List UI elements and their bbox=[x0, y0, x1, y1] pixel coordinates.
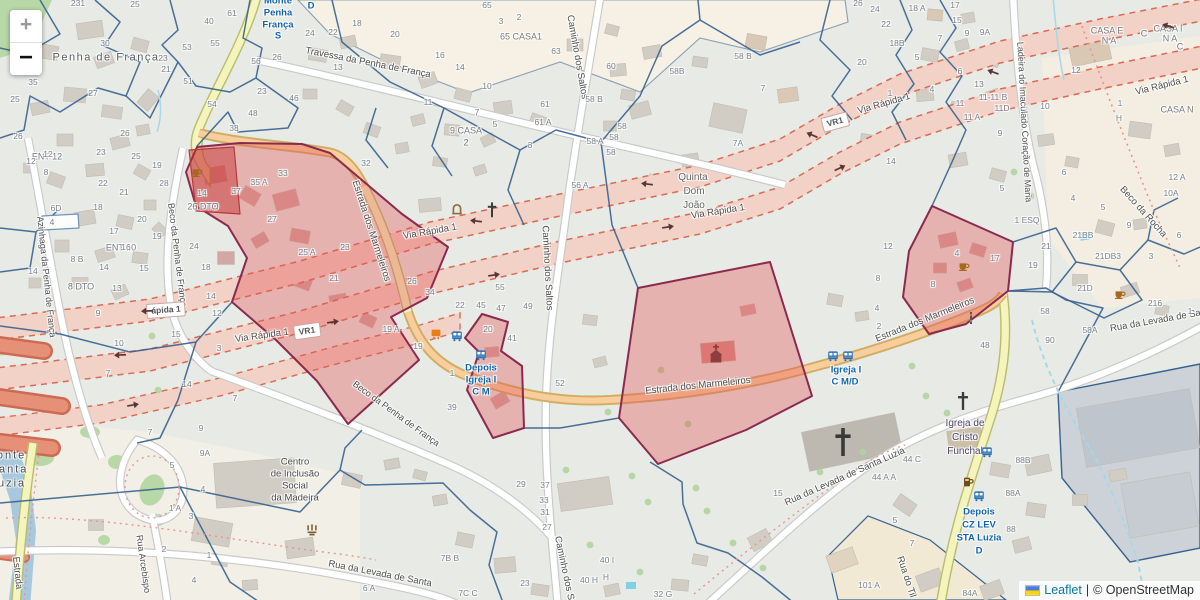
house-number: 88 bbox=[1006, 525, 1015, 534]
road-ref-shield: VR1 bbox=[293, 322, 321, 340]
house-number: 15 bbox=[952, 16, 961, 25]
house-number: 1 bbox=[1118, 99, 1123, 108]
attribution-bar: Leaflet | © OpenStreetMap bbox=[1019, 581, 1200, 600]
house-number: 3 bbox=[528, 141, 533, 150]
house-number: 9A bbox=[980, 28, 990, 37]
house-number: 9 bbox=[965, 29, 970, 38]
street-label: Azinhaga da Penha de França bbox=[35, 216, 57, 338]
bus-stop-label: D bbox=[976, 546, 983, 556]
place-label: 26 DTO bbox=[187, 203, 218, 212]
house-number: 15 bbox=[139, 264, 148, 273]
house-number: 7 bbox=[910, 539, 915, 548]
house-number: 22 bbox=[98, 179, 107, 188]
house-number: 44 C bbox=[903, 455, 921, 464]
house-number: 19 bbox=[1028, 261, 1037, 270]
house-number: 8 B bbox=[71, 255, 84, 264]
house-number: 10 bbox=[482, 82, 491, 91]
house-number: 7 bbox=[148, 428, 153, 437]
house-number: 7 bbox=[106, 369, 111, 378]
leaflet-link[interactable]: Leaflet bbox=[1044, 583, 1082, 597]
place-label: Funchal bbox=[947, 447, 983, 457]
house-number: 1 bbox=[450, 369, 455, 378]
house-number: 24 bbox=[870, 5, 879, 14]
house-number: 11 A bbox=[964, 113, 980, 122]
oneway-arrow-icon bbox=[327, 318, 340, 326]
house-number: 58 bbox=[1040, 307, 1049, 316]
house-number: 17 bbox=[109, 227, 118, 236]
house-number: 8 bbox=[44, 168, 49, 177]
place-label: Centro bbox=[281, 457, 310, 467]
house-number: 3 bbox=[1149, 252, 1154, 261]
house-number: 231 bbox=[71, 0, 85, 7]
house-number: H bbox=[603, 573, 609, 582]
house-number: 20 bbox=[483, 325, 492, 334]
house-number: 55 bbox=[495, 283, 504, 292]
house-number: 9 bbox=[998, 129, 1003, 138]
house-number: 49 bbox=[523, 302, 532, 311]
place-label: 8 DTO bbox=[68, 283, 94, 292]
place-label: João bbox=[683, 201, 705, 211]
house-number: 35 A bbox=[250, 178, 267, 187]
place-label: Luzia bbox=[0, 479, 26, 490]
street-label: Rua da Levada de Santa bbox=[1109, 306, 1200, 334]
house-number: 27 bbox=[542, 523, 551, 532]
house-number: 61 bbox=[540, 100, 549, 109]
house-number: 26 bbox=[407, 277, 416, 286]
barrier-icon bbox=[968, 312, 974, 324]
house-number: 88A bbox=[1005, 489, 1020, 498]
place-label: Dom bbox=[683, 187, 704, 197]
labels-layer: Travessa da Penha de FrançaCaminho dos S… bbox=[0, 0, 1200, 600]
house-number: 30 bbox=[100, 39, 109, 48]
street-label: Estrada dos Marmeleiros bbox=[645, 376, 751, 396]
place-label: Penha de França bbox=[53, 53, 160, 64]
house-number: 25 A bbox=[298, 248, 315, 257]
house-number: 58 bbox=[606, 148, 615, 157]
house-number: 24 bbox=[305, 29, 314, 38]
street-label: Travessa da Penha de França bbox=[305, 46, 432, 80]
house-number: 58A bbox=[1082, 326, 1097, 335]
house-number: 21BB bbox=[1073, 231, 1094, 240]
house-number: 3 bbox=[217, 344, 222, 353]
house-number: 5 bbox=[1000, 184, 1005, 193]
house-number: 19 A bbox=[382, 325, 399, 334]
house-number: 5 bbox=[170, 461, 175, 470]
attribution-separator: | bbox=[1086, 583, 1089, 597]
house-number: 21DB3 bbox=[1095, 252, 1121, 261]
house-number: 26 bbox=[853, 0, 862, 7]
house-number: 17 bbox=[950, 1, 959, 10]
monument-icon bbox=[306, 524, 319, 537]
house-number: 61 A bbox=[534, 118, 551, 127]
house-number: 88B bbox=[1015, 456, 1030, 465]
house-number: 20 bbox=[390, 30, 399, 39]
house-number: 16 bbox=[121, 243, 130, 252]
house-number: 55 bbox=[210, 39, 219, 48]
house-number: 25 bbox=[131, 152, 140, 161]
place-label: Santa bbox=[0, 465, 28, 476]
house-number: 9 bbox=[199, 424, 204, 433]
place-label: C bbox=[1177, 43, 1184, 52]
oneway-arrow-icon bbox=[470, 217, 483, 225]
house-number: 11 bbox=[424, 98, 433, 107]
house-number: 25 bbox=[10, 95, 19, 104]
house-number: 4 bbox=[192, 576, 197, 585]
house-number: 4 bbox=[955, 249, 960, 258]
house-number: 37 bbox=[540, 481, 549, 490]
oneway-arrow-icon bbox=[141, 307, 153, 314]
house-number: 21 bbox=[119, 188, 128, 197]
cafe-icon bbox=[958, 260, 971, 273]
place-label: C bbox=[1141, 30, 1148, 39]
house-number: 58 bbox=[617, 122, 626, 131]
house-number: 101 A bbox=[858, 581, 880, 590]
house-number: 44 A A bbox=[872, 473, 896, 482]
house-number: 22 bbox=[328, 28, 337, 37]
house-number: 7 bbox=[761, 84, 766, 93]
house-number: 23 bbox=[96, 148, 105, 157]
zoom-in-button[interactable]: + bbox=[10, 10, 42, 43]
oneway-arrow-icon bbox=[986, 67, 1000, 78]
zoom-out-button[interactable]: − bbox=[10, 43, 42, 75]
house-number: 18B bbox=[889, 39, 904, 48]
house-number: 32 G bbox=[654, 590, 672, 599]
house-number: 2 bbox=[517, 13, 522, 22]
house-number: 14 bbox=[182, 380, 191, 389]
house-number: 7B B bbox=[441, 554, 459, 563]
bus-stop-label: Igreja I bbox=[831, 365, 862, 375]
cross-icon bbox=[957, 392, 970, 410]
house-number: 20 bbox=[857, 58, 866, 67]
oneway-arrow-icon bbox=[641, 180, 654, 188]
house-number: 23 bbox=[520, 579, 529, 588]
house-number: 12 bbox=[212, 309, 221, 318]
house-number: 7A bbox=[733, 139, 743, 148]
house-number: 27 bbox=[88, 89, 97, 98]
street-label: Estrada bbox=[11, 556, 24, 590]
house-number: 56 A bbox=[571, 181, 588, 190]
house-number: 11-11 B bbox=[979, 93, 1008, 102]
bus-stop-icon bbox=[974, 491, 985, 502]
house-number: 12 bbox=[1071, 66, 1080, 75]
house-number: 15 bbox=[773, 489, 782, 498]
house-number: 40 I bbox=[600, 556, 614, 565]
place-label: Monte bbox=[0, 451, 26, 462]
house-number: 23 bbox=[340, 243, 349, 252]
bus-stop-label: D bbox=[308, 1, 315, 11]
house-number: 18 bbox=[93, 203, 102, 212]
house-number: 27 bbox=[267, 215, 276, 224]
house-number: 6 bbox=[1062, 168, 1067, 177]
house-number: 14 bbox=[206, 292, 215, 301]
bus-stop-label: Depois bbox=[963, 507, 995, 517]
house-number: 14 bbox=[455, 63, 464, 72]
mug-icon bbox=[962, 476, 974, 488]
bus-stop-icon bbox=[476, 350, 487, 361]
house-number: 37 bbox=[231, 187, 240, 196]
house-number: 2 bbox=[877, 322, 882, 331]
house-number: 21 bbox=[329, 274, 338, 283]
house-number: 4 bbox=[201, 485, 206, 494]
oneway-arrow-icon bbox=[833, 162, 847, 173]
house-number: 33 bbox=[539, 496, 548, 505]
house-number: 65 bbox=[482, 1, 491, 10]
zoom-control: + − bbox=[10, 10, 42, 75]
house-number: 11D bbox=[995, 104, 1010, 113]
place-label: 2 bbox=[463, 139, 468, 148]
street-label: Ladeira do Imaculado Coração de Maria bbox=[1015, 42, 1032, 203]
house-number: 13 bbox=[974, 80, 983, 89]
bus-stop-label: Penha bbox=[264, 8, 293, 18]
oneway-arrow-icon bbox=[126, 401, 139, 410]
house-number: 52 bbox=[555, 379, 564, 388]
house-number: 13 bbox=[112, 284, 121, 293]
road-ref-shield: VR1 bbox=[820, 111, 849, 132]
house-number: 60 bbox=[606, 62, 615, 71]
house-number: 58 A bbox=[586, 137, 603, 146]
street-label: Estrada dos Marmeleiros bbox=[350, 179, 392, 282]
house-number: 8 bbox=[876, 274, 881, 283]
house-number: 51 bbox=[183, 77, 192, 86]
house-number: 8 bbox=[931, 280, 936, 289]
oneway-arrow-icon bbox=[114, 351, 126, 358]
map-viewport[interactable]: Travessa da Penha de FrançaCaminho dos S… bbox=[0, 0, 1200, 600]
place-label: CASA E bbox=[1091, 27, 1124, 36]
bus-stop-label: C M/D bbox=[832, 377, 859, 387]
church-icon bbox=[708, 344, 725, 363]
house-number: 6 bbox=[958, 67, 963, 76]
house-number: H bbox=[1116, 114, 1122, 123]
house-number: 1 A bbox=[169, 504, 181, 513]
bus-stop-icon bbox=[828, 351, 839, 362]
street-label: Rua do Til bbox=[895, 555, 917, 599]
house-number: 35 bbox=[28, 78, 37, 87]
house-number: 1 bbox=[1188, 307, 1193, 316]
house-number: 39 bbox=[447, 403, 456, 412]
oneway-arrow-icon bbox=[662, 223, 675, 232]
house-number: 19 bbox=[152, 161, 161, 170]
house-number: 48 bbox=[980, 341, 989, 350]
house-number: 56 bbox=[251, 57, 260, 66]
street-label: Via Rápida 1 bbox=[234, 328, 289, 345]
street-label: Caminho dos Saltos bbox=[553, 535, 580, 600]
cross-icon bbox=[487, 202, 498, 217]
house-number: 22 bbox=[455, 301, 464, 310]
bus-stop-label: STA Luzia bbox=[957, 533, 1002, 543]
place-label: Igreja de bbox=[946, 419, 985, 429]
house-number: 33 bbox=[278, 169, 287, 178]
house-number: 12 bbox=[883, 242, 892, 251]
house-number: 12 A bbox=[1168, 173, 1185, 182]
house-number: 28 bbox=[159, 179, 168, 188]
house-number: 26 bbox=[272, 53, 281, 62]
bus-stop-label: S bbox=[275, 31, 281, 41]
house-number: 17 bbox=[990, 254, 999, 263]
house-number: 1 ESQ bbox=[1014, 216, 1039, 225]
house-number: 23 bbox=[257, 87, 266, 96]
house-number: 21D bbox=[1077, 284, 1093, 293]
bus-stop-label: CZ LEV bbox=[962, 520, 996, 530]
place-label: CASA N bbox=[1160, 106, 1193, 115]
street-label: Caminho dos Saltos bbox=[565, 14, 589, 99]
place-label: de Inclusão bbox=[271, 469, 320, 479]
house-number: 1 bbox=[888, 89, 893, 98]
house-number: 4 bbox=[930, 85, 935, 94]
house-number: 53 bbox=[182, 43, 191, 52]
house-number: 54 bbox=[207, 100, 216, 109]
bus-stop-label: Monte bbox=[264, 0, 292, 6]
house-number: 19 bbox=[413, 342, 422, 351]
house-number: 32 bbox=[361, 159, 370, 168]
street-label: Caminho dos Saltos bbox=[540, 225, 554, 310]
house-number: 9A bbox=[200, 449, 210, 458]
house-number: 9 bbox=[96, 309, 101, 318]
bus-stop-label: Depois bbox=[465, 363, 497, 373]
house-number: 61 bbox=[227, 9, 236, 18]
cross-icon bbox=[833, 428, 853, 456]
place-label: da Madeira bbox=[271, 493, 319, 503]
house-number: 26 bbox=[13, 132, 22, 141]
street-label: Via Rápida 1 bbox=[402, 223, 457, 242]
oneway-arrow-icon bbox=[805, 130, 819, 141]
house-number: 21 bbox=[161, 65, 170, 74]
house-number: 6D bbox=[51, 204, 62, 213]
house-number: 21 bbox=[1041, 242, 1050, 251]
house-number: 216 bbox=[1148, 299, 1162, 308]
house-number: 9 bbox=[1127, 221, 1132, 230]
house-number: 6 bbox=[1177, 231, 1182, 240]
house-number: 47 bbox=[496, 304, 505, 313]
house-number: 34 bbox=[425, 288, 434, 297]
bus-stop-icon bbox=[452, 331, 463, 342]
house-number: 10 bbox=[1040, 102, 1049, 111]
house-number: 38 bbox=[229, 124, 238, 133]
house-number: 12 bbox=[26, 157, 35, 166]
house-number: 14 bbox=[99, 263, 108, 272]
place-label: Social bbox=[282, 481, 308, 491]
place-label: 9 CASA bbox=[450, 127, 482, 136]
street-label: Beco da Rocha bbox=[1118, 185, 1169, 240]
house-number: 58B bbox=[669, 67, 684, 76]
bus-stop-icon bbox=[982, 447, 993, 458]
house-number: 5 bbox=[893, 516, 898, 525]
house-number: 40 H bbox=[580, 576, 598, 585]
house-number: 7C C bbox=[458, 589, 477, 598]
street-label: Beco da Penha de França bbox=[166, 203, 188, 308]
house-number: 58 B bbox=[585, 95, 603, 104]
street-label: Via Rápida 1 bbox=[1135, 75, 1190, 97]
vending-icon bbox=[430, 328, 442, 340]
oneway-arrow-icon bbox=[488, 271, 501, 280]
house-number: 5 bbox=[915, 53, 920, 62]
house-number: 15 bbox=[171, 330, 180, 339]
openstreetmap-link[interactable]: © OpenStreetMap bbox=[1093, 583, 1194, 597]
street-label: Beco da Penha de França bbox=[351, 380, 441, 449]
bus-stop-label: Igreja I bbox=[466, 375, 497, 385]
house-number: 13 bbox=[333, 63, 342, 72]
place-label: N A bbox=[1163, 35, 1178, 44]
house-number: 19 bbox=[152, 232, 161, 241]
house-number: 5 bbox=[493, 120, 498, 129]
house-number: 6 A bbox=[363, 584, 375, 593]
house-number: 3 bbox=[189, 512, 194, 521]
house-number: 3 bbox=[499, 17, 504, 26]
house-number: 4 bbox=[1071, 194, 1076, 203]
house-number: 4 bbox=[875, 304, 880, 313]
house-number: 14 bbox=[886, 157, 895, 166]
house-number: 48 bbox=[248, 109, 257, 118]
house-number: 4 bbox=[50, 218, 55, 227]
street-label: Rua Arcebispo bbox=[134, 534, 151, 593]
house-number: 29 bbox=[516, 480, 525, 489]
house-number: 11 bbox=[956, 99, 965, 108]
house-number: 40 bbox=[204, 17, 213, 26]
house-number: 90 bbox=[1045, 336, 1054, 345]
leaflet-flag-icon bbox=[1025, 585, 1040, 596]
house-number: 12 bbox=[43, 150, 52, 159]
house-number: 26 bbox=[120, 129, 129, 138]
bus-stop-icon bbox=[843, 351, 854, 362]
house-number: 58 bbox=[609, 133, 618, 142]
street-label: Estrada dos Marmeleiros bbox=[874, 296, 975, 344]
cafe-icon bbox=[1114, 288, 1127, 301]
bus-stop-label: C M bbox=[472, 387, 489, 397]
cafe-icon bbox=[191, 166, 204, 179]
house-number: 41 bbox=[507, 334, 516, 343]
house-number: 14 bbox=[197, 189, 206, 198]
house-number: 7 bbox=[475, 108, 480, 117]
house-number: 1 bbox=[207, 551, 212, 560]
house-number: 7 bbox=[233, 394, 238, 403]
house-number: 84A bbox=[962, 589, 977, 598]
house-number: 16 bbox=[435, 51, 444, 60]
street-label: Rua da Levada de Santa bbox=[327, 559, 432, 588]
house-number: 18 bbox=[201, 263, 210, 272]
bus-stop-label: França bbox=[262, 20, 293, 30]
house-number: 10 bbox=[114, 339, 123, 348]
house-number: 7 bbox=[938, 34, 943, 43]
house-number: 2 bbox=[162, 545, 167, 554]
house-number: 31 bbox=[540, 508, 549, 517]
house-number: 18 bbox=[352, 19, 361, 28]
house-number: 58 B bbox=[734, 52, 752, 61]
house-number: 18 A bbox=[908, 4, 925, 13]
house-number: 23 bbox=[158, 54, 167, 63]
place-label: Quinta bbox=[678, 173, 707, 183]
house-number: 25 bbox=[130, 0, 139, 8]
house-number: 24 bbox=[189, 242, 198, 251]
house-number: 5 bbox=[1101, 203, 1106, 212]
gate-icon bbox=[451, 203, 463, 215]
house-number: 46 bbox=[289, 94, 298, 103]
street-label: Via Rápida 1 bbox=[857, 92, 912, 116]
house-number: 14 bbox=[28, 267, 37, 276]
place-label: 65 CASA1 bbox=[500, 33, 542, 42]
house-number: 10A bbox=[1163, 189, 1178, 198]
house-number: 22 bbox=[881, 20, 890, 29]
house-number: 45 bbox=[476, 301, 485, 310]
place-label: N A bbox=[1102, 37, 1117, 46]
house-number: 20 bbox=[137, 215, 146, 224]
house-number: 63 bbox=[551, 47, 560, 56]
place-label: Cristo bbox=[952, 433, 978, 443]
